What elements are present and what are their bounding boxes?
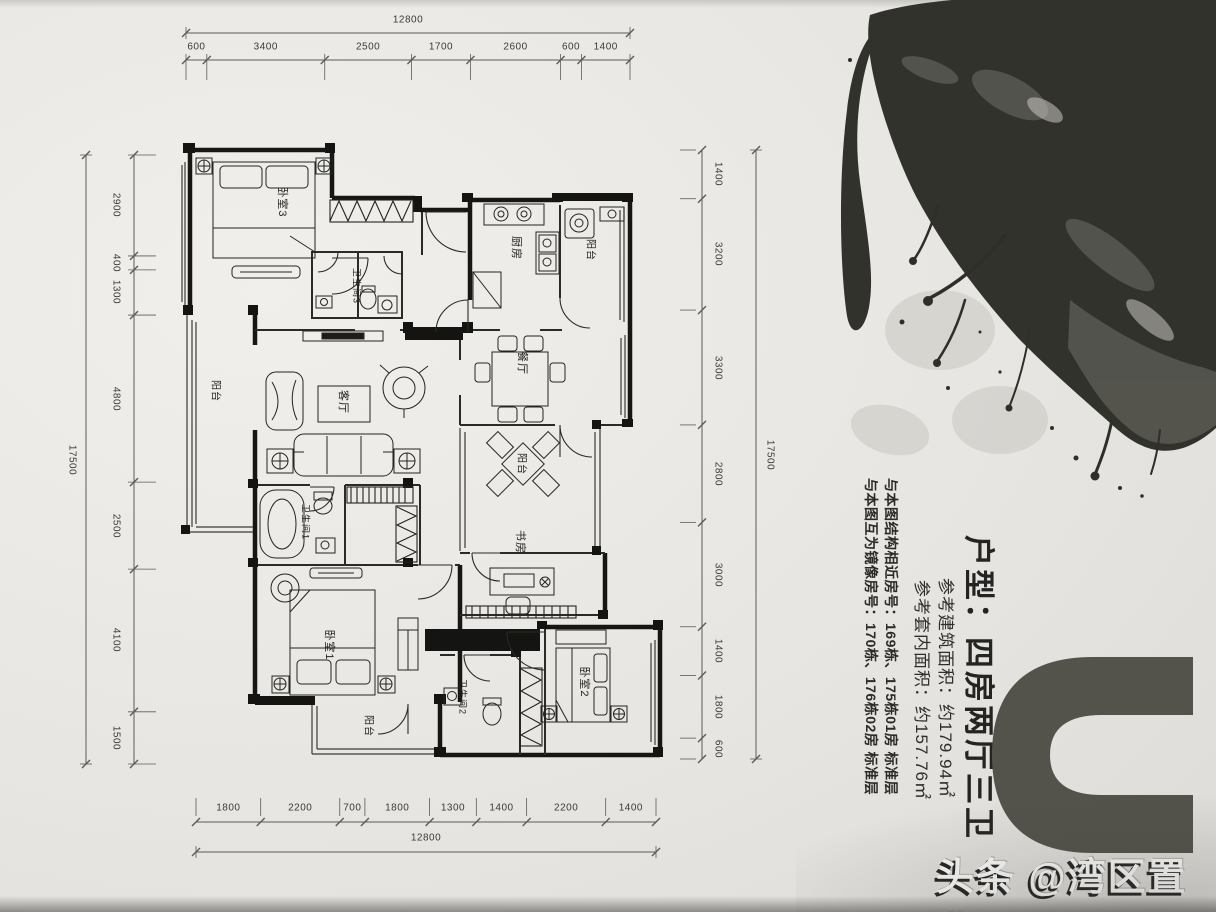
photo-bottom-shadow (0, 896, 1216, 912)
letter-u-graphic (0, 0, 1216, 912)
photo-corner-shadow (796, 792, 1216, 912)
flyer-photo: 6003400250017002600600140012800180022007… (0, 0, 1216, 912)
